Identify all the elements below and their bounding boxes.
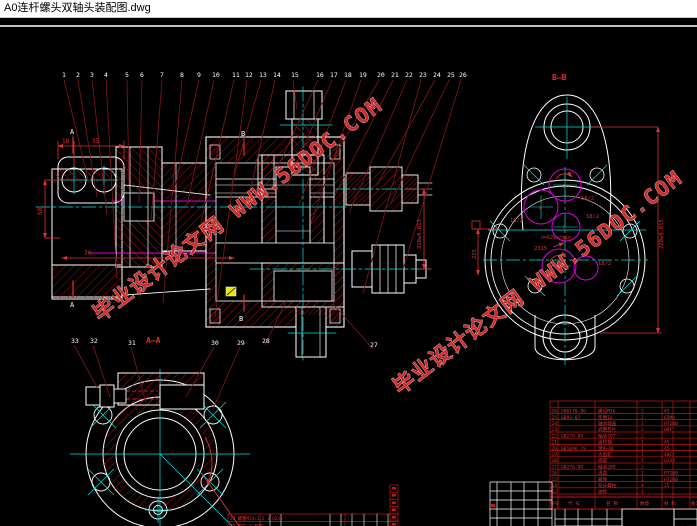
bom-header-name: 名 称 [606, 500, 618, 507]
bom-cell: 24 [552, 421, 558, 427]
gear-ratio-3: 18/2 [586, 214, 599, 220]
window-title: A0连杆螺头双轴头装配图.dwg [4, 2, 151, 14]
bom-cell: 21 [552, 440, 558, 446]
bom-cell: 13 [552, 489, 558, 495]
callout-27: 27 [370, 341, 378, 349]
bom-cell: 垫圈16 [598, 414, 613, 421]
window-titlebar: A0连杆螺头双轴头装配图.dwg [0, 0, 697, 18]
bom-cell: 隔套 [598, 457, 608, 464]
callout-29: 29 [237, 339, 245, 347]
bom-cell: 4 [641, 483, 644, 489]
bom-cell: 油标 [598, 488, 608, 495]
bom-cell: 2 [641, 464, 644, 470]
bom-cell: 齿轮轴 [598, 439, 612, 446]
gear-ratio-2: 18/2 [510, 218, 523, 224]
bom-cell: 透盖 [598, 470, 608, 477]
callout-20: 20 [377, 71, 385, 79]
section-b-bottom: B [239, 315, 243, 323]
callout-23: 23 [419, 71, 427, 79]
gear-num-4: 4 [539, 206, 542, 212]
speed-label: n=629r/min [541, 235, 571, 241]
section-view-a-a: A—A [70, 336, 250, 526]
bom-cell: 轴承207 [598, 432, 616, 439]
bom-cell: 45 [664, 446, 670, 452]
bom-cell: 08F [664, 427, 673, 433]
bom-header-no: 序号 [550, 500, 560, 507]
callout-32: 32 [90, 337, 98, 345]
dim-70: 70 [84, 250, 92, 257]
bom-cell: 2 [641, 409, 644, 415]
section-b-top: B [241, 130, 245, 138]
callout-11: 11 [232, 71, 240, 79]
callout-18: 18 [344, 71, 352, 79]
bom-cell: 1 [641, 452, 644, 458]
tooth-label: 2315 [534, 246, 547, 252]
dim-58: 58 [37, 207, 44, 215]
bom-cell: 调整垫片 [598, 426, 617, 433]
bom-table: 序号 代 号 名 称 数量 材 料 备注 26GB6170-86螺母M16245… [228, 401, 697, 526]
bom-cell: GB276-89 [561, 433, 583, 439]
callout-2: 2 [76, 71, 80, 79]
cad-window: A0连杆螺头双轴头装配图.dwg [0, 0, 697, 526]
callout-6: 6 [140, 71, 144, 79]
callout-22: 22 [405, 71, 413, 79]
bom-cell: 1 [641, 458, 644, 464]
bom-cell: GB93-87 [561, 415, 581, 421]
gear-num-0: 0 [563, 225, 566, 231]
bom-cell: 26 [552, 409, 558, 415]
bom-cell: 1 [641, 421, 644, 427]
callout-25: 25 [447, 71, 455, 79]
callout-12: 12 [245, 71, 253, 79]
gear-num-2: 2 [563, 184, 566, 190]
bom-cell: 1 [641, 489, 644, 495]
bom-cell: 45 [664, 409, 670, 415]
bom-cell: 17 [552, 464, 558, 470]
callout-7: 7 [160, 71, 164, 79]
callout-8: 8 [180, 71, 184, 79]
bom-cell: 2 [641, 427, 644, 433]
section-a-top: A [70, 128, 75, 136]
callout-21: 21 [391, 71, 399, 79]
section-label-aa: A—A [146, 336, 161, 345]
gear-ratio-1: 18/2 [581, 196, 594, 202]
bom-cell: 35 [664, 483, 670, 489]
bom-cell: Q235 [664, 458, 675, 464]
bom-cell: 14 [552, 483, 558, 489]
callout-26: 26 [459, 71, 467, 79]
callout-1: 1 [62, 71, 66, 79]
callout-14: 14 [273, 71, 281, 79]
bom-cell: 16 [552, 471, 558, 477]
callout-5: 5 [125, 71, 129, 79]
bom-cell: 2 [641, 433, 644, 439]
bom-cell: 22 [552, 433, 558, 439]
callout-9: 9 [197, 71, 201, 79]
bom-cell: HT200 [664, 421, 678, 427]
bom-cell: 65Mn [664, 415, 675, 421]
bom-cell: 1 [641, 471, 644, 477]
bom-cell: 40Cr [664, 452, 675, 458]
callout-17: 17 [330, 71, 338, 79]
bom-header-mat: 材 料 [664, 500, 676, 507]
bom-cell: 18 [552, 458, 558, 464]
callout-19: 19 [359, 71, 367, 79]
bom-cell: GB1096-79 [561, 446, 586, 452]
callout-10: 10 [212, 71, 220, 79]
bom-cell: 45 [664, 440, 670, 446]
section-a-bottom: A [70, 301, 75, 309]
callout-24: 24 [433, 71, 441, 79]
bom-cell: 螺母M16 [598, 408, 616, 415]
bom-cell: 1 [641, 440, 644, 446]
callout-4: 4 [104, 71, 108, 79]
mini-bom-row: 32 垫片 1 石棉 [230, 523, 263, 526]
dim-axis-main: 210±0.015 [417, 219, 423, 249]
callout-16: 16 [316, 71, 324, 79]
callout-15: 15 [291, 71, 299, 79]
bom-cell: 25 [552, 415, 558, 421]
gear-ratio-4: 18/2 [598, 261, 611, 267]
drawing-canvas[interactable]: 18 35 58 70 210±0.015 A A B B [0, 17, 697, 526]
bom-cell: 19 [552, 452, 558, 458]
bom-cell: 1 [641, 477, 644, 483]
callout-13: 13 [259, 71, 267, 79]
bom-cell: 轴承209 [598, 463, 616, 470]
bom-cell: 箱体 [598, 476, 608, 483]
bom-cell: HT200 [664, 477, 678, 483]
bom-header-qty: 数量 [640, 500, 650, 507]
callout-28: 28 [262, 337, 270, 345]
bom-cell: 20 [552, 446, 558, 452]
dim-18: 18 [62, 138, 70, 145]
callout-31: 31 [128, 339, 136, 347]
bom-cell: 15 [552, 477, 558, 483]
bom-cell: GB6170-86 [561, 409, 586, 415]
bom-header-note: 备注 [691, 500, 697, 507]
bom-header-code: 代 号 [568, 500, 580, 507]
bom-cell: GB276-89 [561, 464, 583, 470]
callout-3: 3 [90, 71, 94, 79]
bom-cell: 2 [641, 415, 644, 421]
dim-axis-right: 220±0.015 [659, 219, 665, 249]
bom-cell: 双头螺柱 [598, 482, 617, 489]
bom-cell: HT200 [664, 471, 678, 477]
section-label-bb: B—B [552, 73, 567, 82]
bom-cell: 1 [641, 446, 644, 452]
bom-cell: 轴承端盖 [598, 420, 617, 427]
bom-cell: 键8×40 [598, 445, 614, 452]
dim-axis-left: 225 [472, 249, 478, 259]
callout-33: 33 [71, 337, 79, 345]
mini-bom-row: 33 螺塞M14×1.5 1 Q235 [230, 515, 283, 522]
bom-cell: 大齿轮 [598, 451, 612, 458]
callout-30: 30 [211, 339, 219, 347]
bom-cell: 23 [552, 427, 558, 433]
